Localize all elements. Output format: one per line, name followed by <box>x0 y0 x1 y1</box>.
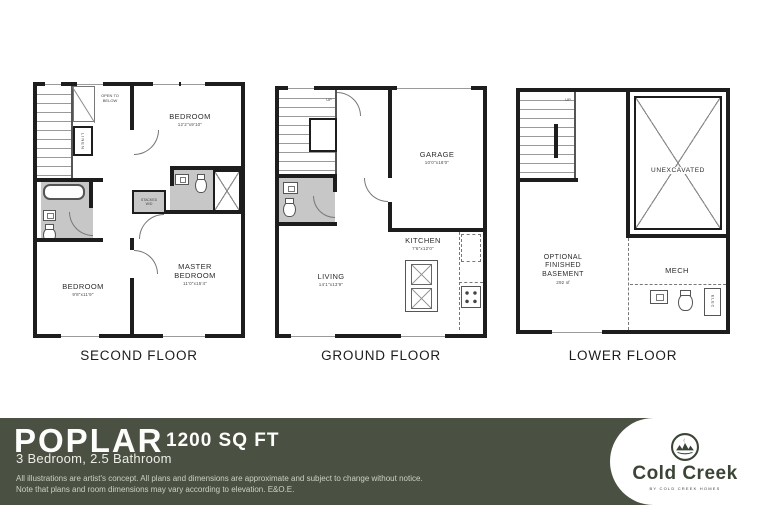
stove <box>461 286 481 308</box>
wall <box>554 124 558 158</box>
room-dims: 12'2"x9'10" <box>150 122 230 127</box>
window <box>552 330 602 334</box>
sink <box>175 174 189 185</box>
floor-caption: SECOND FLOOR <box>33 348 245 363</box>
roughin-toilet <box>678 294 693 311</box>
floor-caption: LOWER FLOOR <box>516 348 730 363</box>
second-floor-plan: OPEN TO BELOW LINEN BEDROOM 12'2"x9'10" … <box>33 82 245 338</box>
staircase <box>520 92 576 178</box>
window <box>77 82 103 86</box>
partition-line <box>628 238 629 330</box>
room-dims: 11'0"x15'4" <box>167 281 223 286</box>
wall <box>130 238 134 250</box>
room-dims: 7'6"x12'0" <box>383 246 463 251</box>
stacked-wd-label: STACKED W/D <box>140 198 158 206</box>
open-to-below-label: OPEN TO BELOW <box>97 94 123 104</box>
wall <box>516 330 730 334</box>
window <box>291 334 335 338</box>
roughin-sink <box>650 290 668 304</box>
basement-label: OPTIONAL FINISHED BASEMENT 292 sf <box>535 254 591 286</box>
ground-floor-plan: UP GARAGE 10'0"x18'0" KITCHEN 7'6"x12'0"… <box>275 86 487 338</box>
disclaimer-line-1: All illustrations are artist's concept. … <box>16 474 423 483</box>
door-arc <box>134 250 158 274</box>
door-arc <box>337 92 361 116</box>
mech-label: MECH <box>642 266 712 275</box>
linen-closet: LINEN <box>73 126 93 156</box>
wall <box>241 82 245 338</box>
wall <box>388 86 392 178</box>
brand-logo-panel: Cold Creek BY COLD CREEK HOMES <box>610 418 760 505</box>
wall <box>130 82 134 130</box>
room-name: LIVING <box>291 272 371 281</box>
elec-label: ELEC <box>711 295 715 308</box>
island-appliance <box>411 288 432 309</box>
room-name: BEDROOM <box>43 282 123 291</box>
up-label: UP <box>323 98 335 103</box>
master-bedroom-label: MASTER BEDROOM 11'0"x15'4" <box>167 262 223 286</box>
staircase <box>37 86 73 178</box>
window <box>61 334 99 338</box>
cold-creek-emblem <box>670 432 700 462</box>
floorplan-sheet: OPEN TO BELOW LINEN BEDROOM 12'2"x9'10" … <box>0 0 760 505</box>
wall <box>89 182 93 208</box>
room-dims: 292 sf <box>535 280 591 285</box>
room-dims: 10'0"x18'0" <box>397 160 477 165</box>
wall <box>170 170 174 186</box>
room-name: UNEXCAVATED <box>649 167 707 174</box>
wall <box>726 88 730 334</box>
room-dims: 9'8"x11'9" <box>43 292 123 297</box>
brand-name: Cold Creek <box>632 464 737 483</box>
window <box>153 82 179 86</box>
window <box>181 82 205 86</box>
window <box>45 82 61 86</box>
partition-line <box>630 284 726 285</box>
window <box>163 334 205 338</box>
room-name: OPTIONAL FINISHED BASEMENT <box>535 254 591 279</box>
bathtub <box>43 184 85 200</box>
wall <box>483 86 487 338</box>
up-label: UP <box>562 98 574 103</box>
plan-area: 1200 SQ FT <box>166 430 280 452</box>
lower-floor-plan: UP UNEXCAVATED OPTIONAL FINISHED BASEMEN… <box>516 88 730 334</box>
wall <box>279 222 337 226</box>
sink <box>43 210 56 221</box>
garage-door <box>397 86 471 90</box>
room-name: BEDROOM <box>150 112 230 121</box>
wall <box>520 178 578 182</box>
plan-specs: 3 Bedroom, 2.5 Bathroom <box>16 451 172 466</box>
sink <box>283 182 298 194</box>
stacked-washer-dryer: STACKED W/D <box>132 190 166 214</box>
stair-closet <box>309 118 337 152</box>
shower <box>213 170 241 212</box>
bedroom-label: BEDROOM 9'8"x11'9" <box>43 282 123 297</box>
bedroom-label: BEDROOM 12'2"x9'10" <box>150 112 230 127</box>
brand-tagline: BY COLD CREEK HOMES <box>650 486 721 491</box>
unexcavated-label: UNEXCAVATED <box>634 158 722 177</box>
island-sink <box>411 264 432 285</box>
window <box>401 334 445 338</box>
room-dims: 14'1"x13'9" <box>291 282 371 287</box>
kitchen-label: KITCHEN 7'6"x12'0" <box>383 236 463 251</box>
garage-label: GARAGE 10'0"x18'0" <box>397 150 477 165</box>
wall <box>626 88 630 238</box>
living-label: LIVING 14'1"x13'9" <box>291 272 371 287</box>
room-name: MASTER BEDROOM <box>167 262 223 280</box>
electrical-panel: ELEC <box>704 288 721 316</box>
room-name: KITCHEN <box>383 236 463 245</box>
wall <box>37 238 103 242</box>
toilet <box>283 202 296 217</box>
room-name: GARAGE <box>397 150 477 159</box>
wall <box>166 210 241 214</box>
window <box>288 86 314 90</box>
wall <box>130 278 134 334</box>
linen-label: LINEN <box>81 133 86 150</box>
wall <box>333 178 337 192</box>
wall <box>388 228 483 232</box>
fridge <box>461 234 481 262</box>
door-arc <box>134 130 159 155</box>
floor-caption: GROUND FLOOR <box>275 348 487 363</box>
wall <box>626 234 726 238</box>
door-arc <box>139 214 164 239</box>
counter-line <box>459 282 483 283</box>
toilet <box>195 178 207 193</box>
disclaimer-line-2: Note that plans and room dimensions may … <box>16 485 294 494</box>
door-arc <box>364 178 388 202</box>
